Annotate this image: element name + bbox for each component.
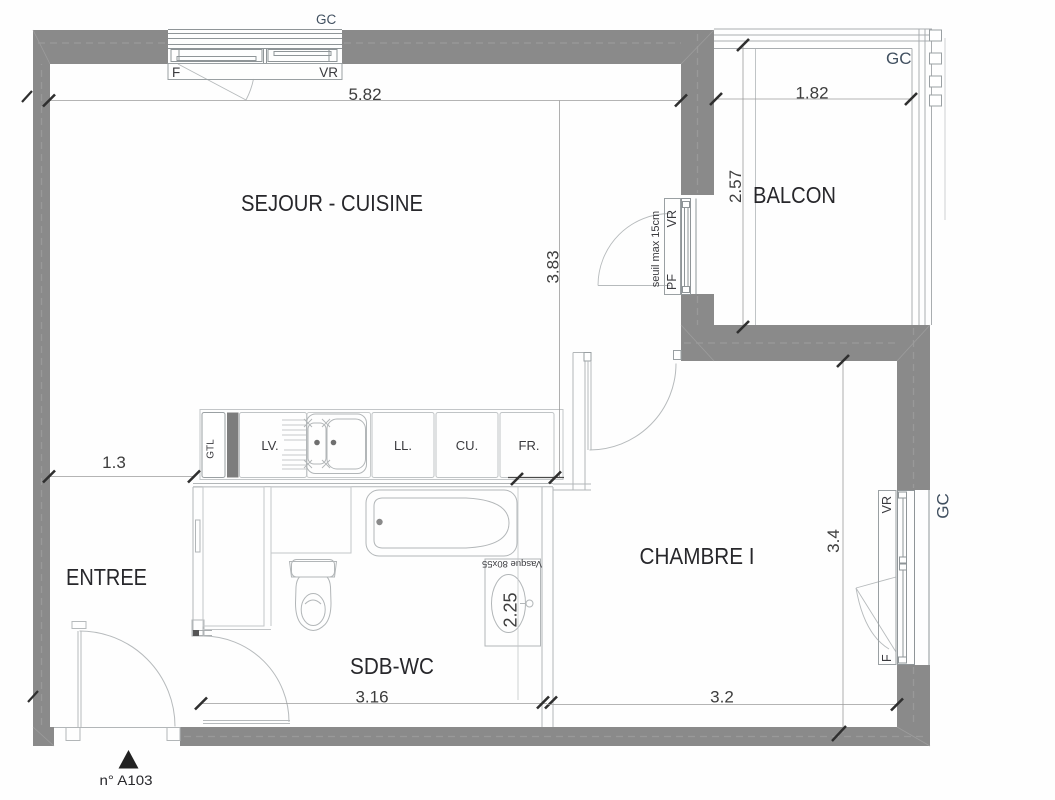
- svg-text:LL.: LL.: [394, 438, 412, 453]
- svg-text:1.3: 1.3: [102, 453, 126, 472]
- svg-text:2.57: 2.57: [726, 170, 745, 203]
- svg-text:GC: GC: [886, 49, 912, 68]
- svg-text:3.4: 3.4: [824, 529, 843, 553]
- svg-text:3.83: 3.83: [544, 250, 563, 283]
- svg-text:GC: GC: [934, 493, 953, 519]
- svg-text:F: F: [172, 65, 180, 80]
- svg-text:3.16: 3.16: [355, 688, 388, 707]
- svg-text:SDB-WC: SDB-WC: [350, 653, 434, 679]
- svg-text:FR.: FR.: [519, 438, 540, 453]
- svg-text:n° A103: n° A103: [100, 772, 153, 788]
- svg-text:VR: VR: [319, 65, 338, 80]
- svg-text:CHAMBRE I: CHAMBRE I: [640, 543, 755, 569]
- svg-text:seuil max 15cm: seuil max 15cm: [650, 211, 662, 287]
- svg-text:GC: GC: [316, 12, 337, 27]
- svg-text:CU.: CU.: [456, 438, 478, 453]
- svg-text:SEJOUR - CUISINE: SEJOUR - CUISINE: [241, 190, 423, 216]
- svg-text:F: F: [880, 654, 894, 662]
- svg-text:3.2: 3.2: [710, 688, 734, 707]
- svg-text:ENTREE: ENTREE: [66, 564, 147, 590]
- svg-text:GTL: GTL: [206, 439, 217, 459]
- svg-text:PF: PF: [665, 274, 679, 290]
- svg-text:2.25: 2.25: [501, 592, 521, 627]
- svg-text:LV.: LV.: [261, 438, 278, 453]
- svg-text:1.82: 1.82: [795, 84, 828, 103]
- svg-text:Vasque 80x55: Vasque 80x55: [482, 558, 542, 569]
- svg-text:VR: VR: [880, 496, 894, 513]
- svg-text:BALCON: BALCON: [753, 182, 836, 208]
- svg-text:5.82: 5.82: [348, 85, 381, 104]
- svg-text:VR: VR: [665, 210, 679, 227]
